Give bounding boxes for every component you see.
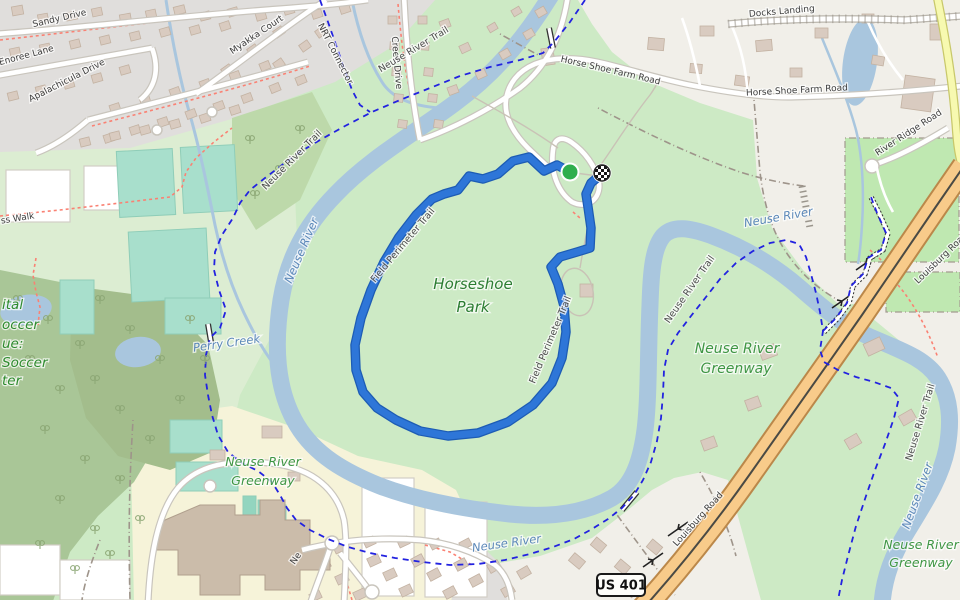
map-label-greenway-sw-line1: Neuse River: [225, 454, 301, 469]
map-label-greenway-se-line2: Greenway: [889, 555, 953, 570]
map-label-soccer-frag-5: ter: [2, 373, 23, 389]
map-label-soccer-frag-2: occer: [2, 317, 40, 333]
route-shield-text: US 401: [595, 579, 647, 594]
map-viewport[interactable]: Sandy DriveCreek DriveMyakka CourtEnoree…: [0, 0, 960, 600]
finish-marker[interactable]: [593, 164, 612, 183]
start-marker[interactable]: [561, 163, 580, 182]
map-label-soccer-frag-3: ue:: [2, 336, 23, 352]
map-label-soccer-frag-4: Soccer: [2, 355, 49, 371]
map-label-greenway-e-line2: Greenway: [700, 361, 772, 377]
map-label-greenway-se-line1: Neuse River: [883, 537, 959, 552]
map-label-greenway-e-line1: Neuse River: [695, 341, 781, 357]
map-canvas[interactable]: Sandy DriveCreek DriveMyakka CourtEnoree…: [0, 0, 960, 600]
map-label-horseshoe-park-line2: Park: [456, 298, 490, 316]
route-shield-us401: US 401: [595, 574, 647, 596]
map-label-soccer-frag-1: ital: [2, 297, 23, 313]
map-label-horseshoe-park-line1: Horseshoe: [433, 275, 512, 293]
map-label-greenway-sw-line2: Greenway: [231, 473, 295, 488]
